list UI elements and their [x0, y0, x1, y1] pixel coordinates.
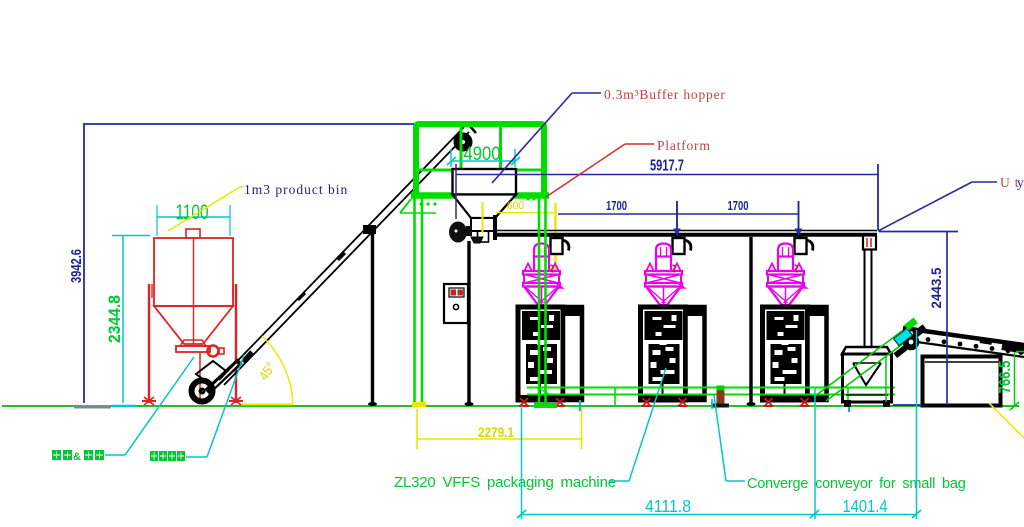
svg-text:4900: 4900 [464, 144, 501, 165]
svg-text:1401.4: 1401.4 [843, 496, 888, 516]
svg-text:2344.8: 2344.8 [105, 295, 124, 343]
svg-text:Platform: Platform [657, 138, 711, 153]
svg-text:1700: 1700 [728, 198, 749, 213]
svg-text:1700: 1700 [606, 198, 627, 213]
svg-text:&: & [73, 451, 81, 463]
svg-text:2279.1: 2279.1 [478, 425, 514, 440]
svg-text:2443.5: 2443.5 [929, 267, 944, 308]
svg-text:ZL320 VFFS packaging machine: ZL320 VFFS packaging machine [394, 474, 616, 491]
svg-text:1m3 product bin: 1m3 product bin [244, 182, 348, 197]
svg-text:Converge conveyor for small ba: Converge conveyor for small bag [747, 476, 966, 492]
svg-text:4111.8: 4111.8 [645, 496, 691, 516]
svg-text:y: y [1017, 175, 1024, 190]
svg-text:5917.7: 5917.7 [650, 158, 684, 175]
svg-text:1100: 1100 [176, 201, 209, 224]
svg-text:3942.6: 3942.6 [68, 249, 85, 283]
svg-text:600: 600 [507, 200, 524, 212]
svg-text:766.5: 766.5 [997, 360, 1014, 393]
svg-text:0.3m³Buffer hopper: 0.3m³Buffer hopper [604, 87, 726, 102]
